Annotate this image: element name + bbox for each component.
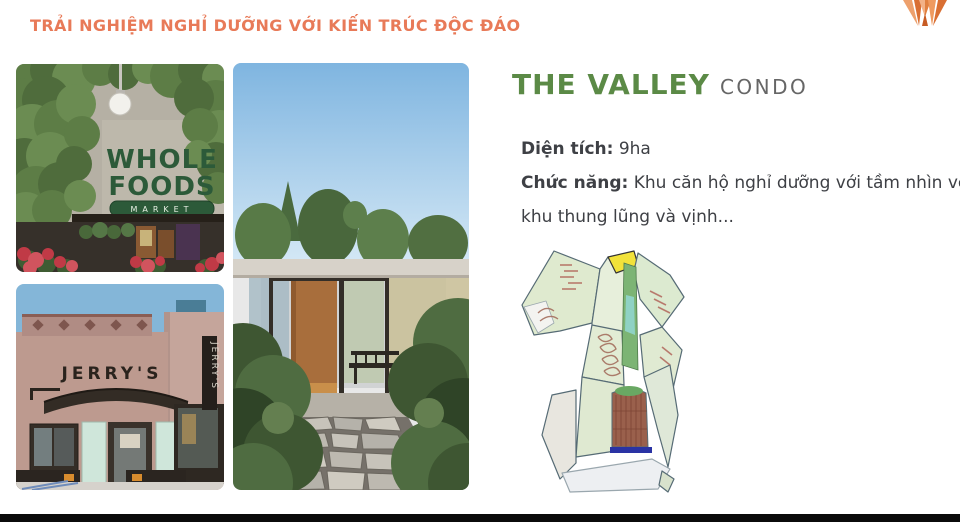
photo-jerrys-store: JERRY'S — [16, 284, 224, 490]
jerrys-vertical-sign: JERRY'S — [202, 336, 219, 410]
concrete-roof — [233, 259, 469, 275]
whole-foods-sign-line2: FOODS — [108, 172, 215, 202]
map-central-block — [610, 386, 652, 453]
whole-foods-market-banner: MARKET — [130, 205, 193, 214]
jerrys-sign-text: JERRY'S — [61, 364, 163, 384]
cornice — [22, 314, 152, 336]
bottom-bar — [0, 514, 960, 522]
photo-whole-foods-store: WHOLE FOODS MARKET — [16, 64, 224, 272]
brand-logo-icon — [903, 0, 947, 28]
function-label: Chức năng: — [521, 173, 628, 193]
photo-pavilion-path — [233, 63, 469, 490]
area-label: Diện tích: — [521, 139, 613, 159]
project-name: THE VALLEY — [512, 68, 710, 101]
function-row: Chức năng: Khu căn hộ nghỉ dưỡng với tầm… — [521, 166, 960, 234]
slide: TRẢI NGHIỆM NGHỈ DƯỠNG VỚI KIẾN TRÚC ĐỘC… — [0, 0, 960, 522]
project-specs: Diện tích: 9ha Chức năng: Khu căn hộ ngh… — [521, 132, 960, 234]
masterplan-map — [512, 235, 707, 493]
whole-foods-sign-line1: WHOLE — [106, 145, 218, 175]
area-value: 9ha — [619, 139, 651, 159]
project-headline: THE VALLEYCONDO — [512, 68, 808, 101]
area-row: Diện tích: 9ha — [521, 132, 960, 166]
project-type: CONDO — [720, 75, 808, 99]
svg-text:JERRY'S: JERRY'S — [209, 341, 219, 390]
slide-title: TRẢI NGHIỆM NGHỈ DƯỠNG VỚI KIẾN TRÚC ĐỘC… — [30, 16, 670, 35]
